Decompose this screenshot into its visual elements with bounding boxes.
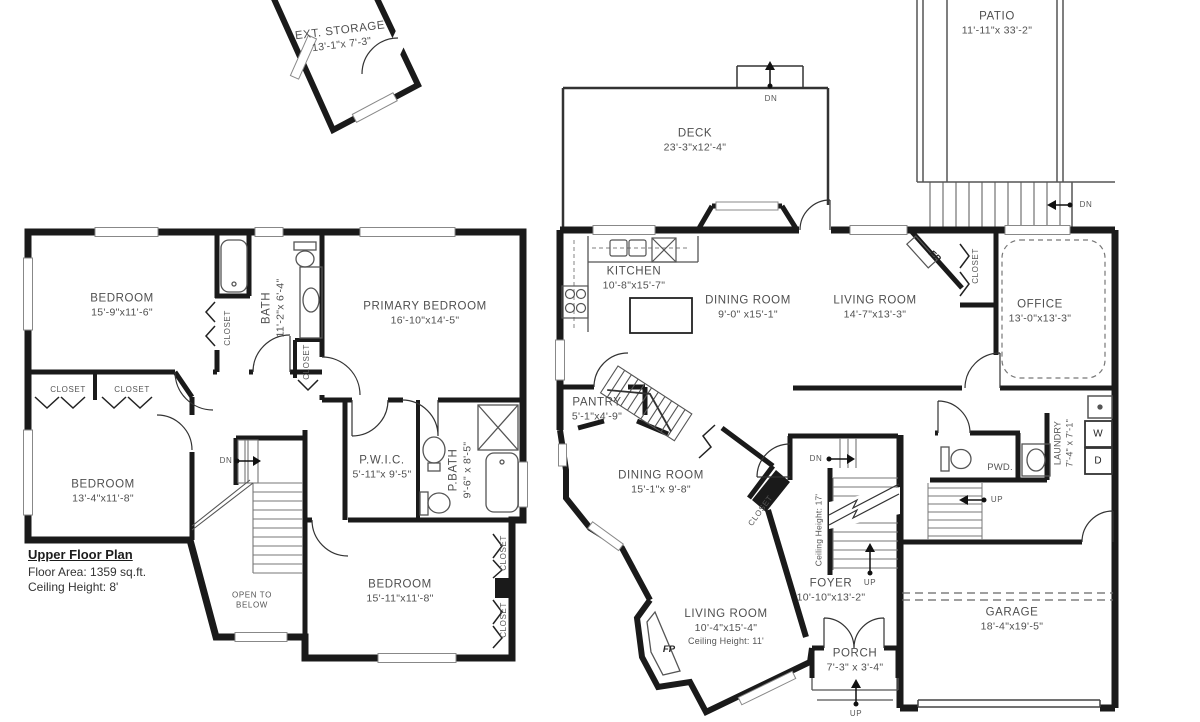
room-label-porch: PORCH 7'-3" x 3'-4" <box>827 647 884 676</box>
room-label-pwic: P.W.I.C. 5'-11"x 9'-5" <box>353 454 412 483</box>
room-label-pantry: PANTRY 5'-1"x4'-9" <box>572 396 622 425</box>
floor-plan-page: EXT. STORAGE 13'-1"x 7'-3" BEDROOM 15'-9… <box>0 0 1200 722</box>
room-label-dining-room: DINING ROOM 9'-0" x15'-1" <box>705 294 791 323</box>
plan-floor-area: Floor Area: 1359 sq.ft. <box>28 565 146 580</box>
ext-storage-window <box>352 93 397 123</box>
main-closet-doors <box>699 244 969 458</box>
deck-door-arc <box>800 200 830 230</box>
bay-window-glass <box>716 202 778 210</box>
room-label-foyer: FOYER 10'-10"x13'-2" <box>797 577 866 606</box>
closet-label-4: CLOSET <box>114 385 150 395</box>
up-label-basement-stairs: UP <box>991 495 1003 505</box>
dn-label-deck: DN <box>765 94 778 104</box>
room-label-dining-room-lower: DINING ROOM 15'-1"x 9'-8" <box>618 469 704 498</box>
stair-ceiling-note: Ceiling Height: 17' <box>813 494 824 567</box>
room-label-patio: PATIO 11'-11"x 33'-2" <box>962 10 1032 39</box>
room-label-kitchen: KITCHEN 10'-8"x15'-7" <box>603 265 666 294</box>
room-label-laundry: LAUNDRY 7'-4" x 7'-1" <box>1052 419 1075 467</box>
closet-label-5: CLOSET <box>499 535 509 571</box>
basement-stairs <box>928 483 982 540</box>
fp-label-lower: FP <box>663 644 675 656</box>
room-label-living-room-lower: LIVING ROOM 10'-4"x15'-4" Ceiling Height… <box>684 607 767 647</box>
dn-label-patio: DN <box>1080 200 1093 210</box>
closet-label-6: CLOSET <box>499 602 509 638</box>
up-label-foyer-stairs: UP <box>864 578 876 588</box>
room-label-bedroom-left: BEDROOM 13'-4"x11'-8" <box>71 478 135 507</box>
closet-label-1: CLOSET <box>223 310 233 346</box>
plan-ceiling-height: Ceiling Height: 8' <box>28 580 146 595</box>
upper-stairs <box>192 440 303 573</box>
room-label-bedroom-front: BEDROOM 15'-9"x11'-6" <box>90 292 154 321</box>
room-label-bedroom-rear: BEDROOM 15'-11"x11'-8" <box>366 578 433 607</box>
room-label-garage: GARAGE 18'-4"x19'-5" <box>981 606 1044 635</box>
upper-doors <box>157 335 438 556</box>
up-arrow-porch <box>851 679 861 707</box>
up-label-porch: UP <box>850 709 862 719</box>
room-label-deck: DECK 23'-3"x12'-4" <box>664 127 727 156</box>
dn-label-foyer-stairs: DN <box>810 454 823 464</box>
dn-arrow-deck <box>765 61 775 89</box>
washer-label: W <box>1093 428 1102 441</box>
room-label-powder: PWD. <box>987 462 1013 474</box>
closet-label-7: CLOSET <box>971 248 981 284</box>
room-label-pbath: P.BATH 9'-6" x 8'-5" <box>447 442 476 499</box>
dryer-label: D <box>1094 455 1101 468</box>
open-to-below-label: OPEN TO BELOW <box>232 591 272 612</box>
closet-label-2: CLOSET <box>302 344 312 380</box>
closet-divider-wall <box>495 578 512 598</box>
room-label-bath: BATH 11'-2"x 6'-4" <box>260 279 289 338</box>
room-label-office: OFFICE 13'-0"x13'-3" <box>1009 298 1072 327</box>
ext-storage-structure <box>270 0 418 130</box>
room-label-living-room: LIVING ROOM 14'-7"x13'-3" <box>833 294 916 323</box>
closet-label-3: CLOSET <box>50 385 86 395</box>
dn-arrow-foyer-stairs <box>827 454 856 464</box>
deck-door-gap <box>799 226 831 235</box>
plan-title: Upper Floor Plan <box>28 547 146 562</box>
dn-label-upper-stairs: DN <box>220 456 233 466</box>
pwd-laundry-fixtures <box>941 396 1112 476</box>
room-label-primary-bedroom: PRIMARY BEDROOM 16'-10"x14'-5" <box>363 300 487 329</box>
plan-title-block: Upper Floor Plan Floor Area: 1359 sq.ft.… <box>28 547 146 595</box>
